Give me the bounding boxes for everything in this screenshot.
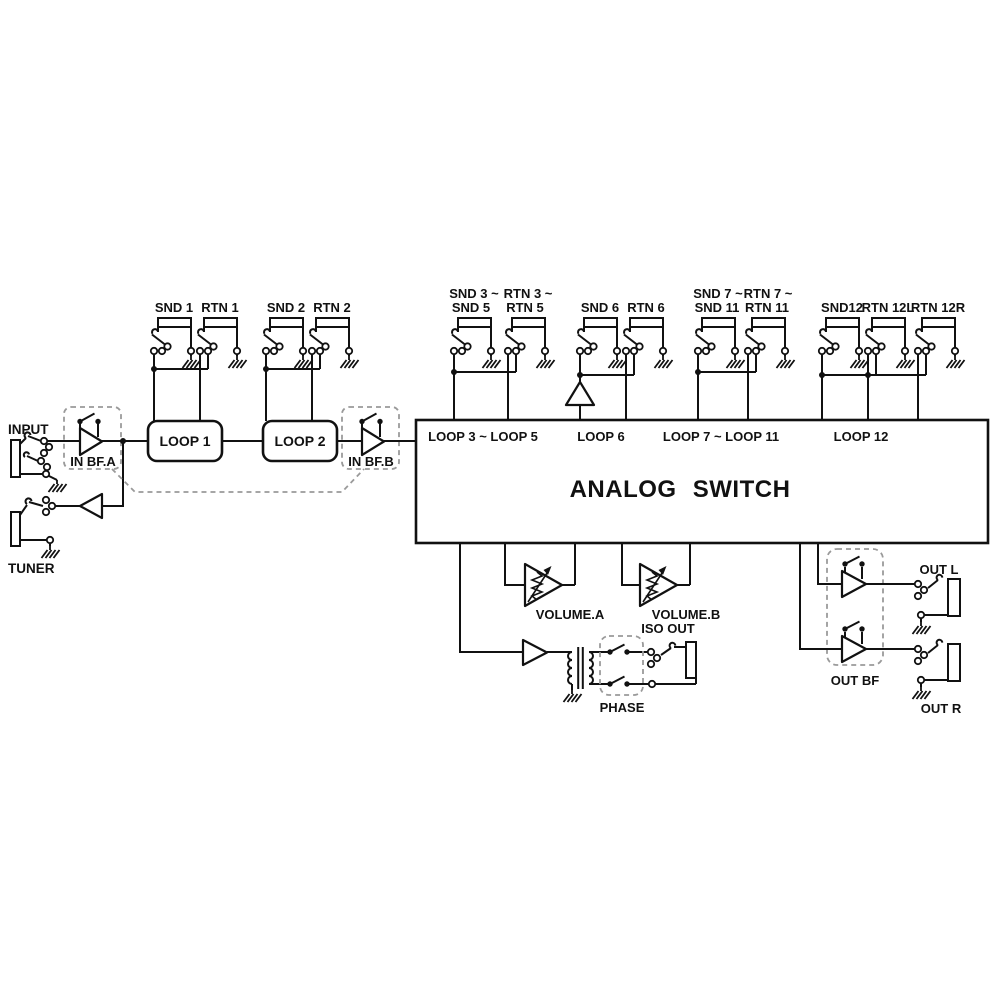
bypass-switch-blade xyxy=(80,414,95,422)
out-l-jack-body xyxy=(948,579,960,616)
rtn12l-jack: RTN 12L xyxy=(862,300,915,420)
ground-icon xyxy=(947,327,965,368)
rtn3-5-label-line1: RTN 3 ~ xyxy=(504,286,553,301)
rtn1-label: RTN 1 xyxy=(201,300,239,315)
analog-switch-box: LOOP 3 ~ LOOP 5 LOOP 6 LOOP 7 ~ LOOP 11 … xyxy=(416,420,988,543)
transformer-icon xyxy=(564,647,594,702)
tuner-jack: TUNER xyxy=(8,497,60,576)
phase-dashed-box xyxy=(600,636,643,695)
in-bf-b-label: IN BF.B xyxy=(348,454,394,469)
rtn1-jack: RTN 1 xyxy=(197,300,247,421)
as-loop12-label: LOOP 12 xyxy=(834,429,889,444)
snd12-label: SND12 xyxy=(821,300,863,315)
rtn2-label: RTN 2 xyxy=(313,300,351,315)
out-r-label: OUT R xyxy=(921,701,962,716)
snd7-11-label-line2: SND 11 xyxy=(695,300,740,315)
out-l-jack: OUT L xyxy=(913,562,961,634)
snd6-jack: SND 6 xyxy=(566,300,634,420)
rtn7-11-label-line1: RTN 7 ~ xyxy=(744,286,793,301)
ground-icon xyxy=(42,546,60,558)
phase-switch-blade xyxy=(610,645,625,653)
volume-b-block: VOLUME.B xyxy=(622,543,720,622)
ground-icon xyxy=(341,327,359,368)
bypass-dashed-path xyxy=(112,469,364,492)
rtn7-11-jack: RTN 7 ~ RTN 11 xyxy=(744,286,795,420)
tuner-buffer xyxy=(55,441,123,518)
phase-switch: PHASE xyxy=(600,636,645,715)
phase-switch-blade xyxy=(610,677,625,685)
out-bf-block: OUT BF xyxy=(800,543,915,688)
ground-icon xyxy=(727,327,745,368)
loop1-label: LOOP 1 xyxy=(159,433,210,449)
ground-icon xyxy=(229,327,247,368)
volume-a-amp xyxy=(525,564,562,606)
out-r-jack-body xyxy=(948,644,960,681)
ground-icon xyxy=(897,327,915,368)
iso-out-section: PHASE ISO OUT xyxy=(460,543,696,715)
in-bf-a-label: IN BF.A xyxy=(70,454,116,469)
in-bf-b-buffer: IN BF.B xyxy=(342,407,416,469)
analog-switch-title: ANALOG SWITCH xyxy=(570,476,791,503)
snd2-label: SND 2 xyxy=(267,300,305,315)
ground-icon xyxy=(777,327,795,368)
loop1-box: LOOP 1 xyxy=(148,421,222,461)
volume-b-amp xyxy=(640,564,677,606)
tuner-buffer-amp xyxy=(80,494,102,518)
loop2-box: LOOP 2 xyxy=(263,421,337,461)
input-jack-body xyxy=(11,440,20,477)
snd6-label: SND 6 xyxy=(581,300,619,315)
out-bf-label: OUT BF xyxy=(831,673,879,688)
rtn6-label: RTN 6 xyxy=(627,300,665,315)
as-loop6-label: LOOP 6 xyxy=(577,429,624,444)
out-r-jack: OUT R xyxy=(913,640,962,716)
iso-out-driver-amp xyxy=(523,640,547,665)
rtn12r-label: RTN 12R xyxy=(911,300,966,315)
volume-a-block: VOLUME.A xyxy=(505,543,605,622)
rtn12r-jack: RTN 12R xyxy=(911,300,966,420)
input-label: INPUT xyxy=(8,422,49,437)
ground-icon xyxy=(537,327,555,368)
rtn3-5-jack: RTN 3 ~ RTN 5 xyxy=(504,286,555,420)
as-loop3-5-label: LOOP 3 ~ LOOP 5 xyxy=(428,429,538,444)
phase-label: PHASE xyxy=(600,700,645,715)
bypass-switch-blade xyxy=(362,414,377,422)
snd7-11-label-line1: SND 7 ~ xyxy=(693,286,743,301)
ground-icon xyxy=(913,687,931,699)
bypass-switch-blade xyxy=(845,557,860,565)
rtn6-jack: RTN 6 xyxy=(623,300,673,420)
rtn2-jack: RTN 2 xyxy=(309,300,359,421)
volume-a-label: VOLUME.A xyxy=(536,607,605,622)
ground-icon xyxy=(913,622,931,634)
snd6-driver-amp xyxy=(566,382,594,405)
volume-b-label: VOLUME.B xyxy=(652,607,721,622)
rtn12l-label: RTN 12L xyxy=(862,300,915,315)
snd3-5-label-line1: SND 3 ~ xyxy=(449,286,499,301)
loop2-label: LOOP 2 xyxy=(274,433,325,449)
rtn3-5-label-line2: RTN 5 xyxy=(506,300,544,315)
ground-icon xyxy=(483,327,501,368)
in-bf-a-buffer: IN BF.A xyxy=(47,407,148,469)
ground-icon xyxy=(49,480,67,492)
input-jack: INPUT xyxy=(8,422,67,492)
snd3-5-label-line2: SND 5 xyxy=(452,300,490,315)
as-loop7-11-label: LOOP 7 ~ LOOP 11 xyxy=(663,429,779,444)
bypass-switch-blade xyxy=(845,622,860,630)
loop-switcher-diagram: INPUT TUNER xyxy=(0,0,1000,1000)
iso-out-label: ISO OUT xyxy=(641,621,695,636)
ground-icon xyxy=(564,690,582,702)
rtn7-11-label-line2: RTN 11 xyxy=(745,300,789,315)
tuner-jack-body xyxy=(11,512,20,546)
iso-out-jack: ISO OUT xyxy=(641,621,696,687)
tuner-label: TUNER xyxy=(8,561,55,576)
iso-out-jack-body xyxy=(686,642,696,678)
snd1-label: SND 1 xyxy=(155,300,193,315)
ground-icon xyxy=(655,327,673,368)
